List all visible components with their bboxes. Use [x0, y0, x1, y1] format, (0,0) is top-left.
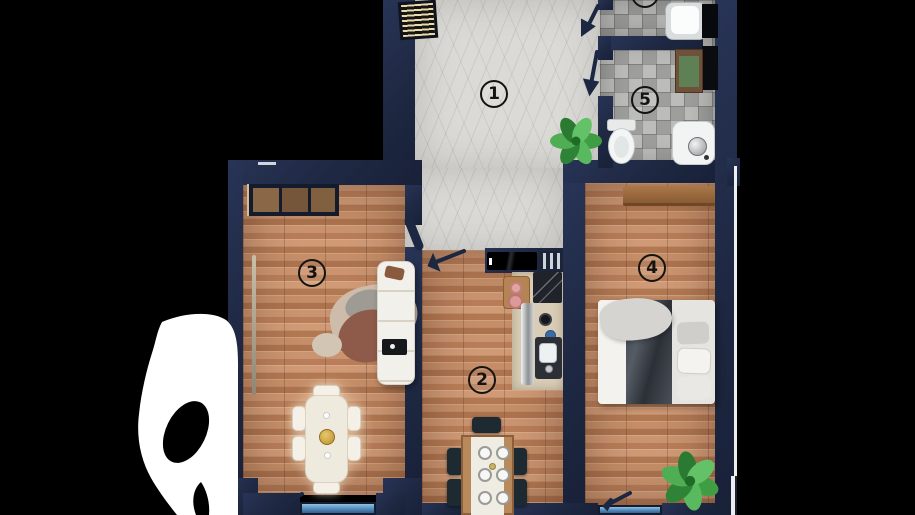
door-leaf [409, 221, 419, 246]
door-arrow-bedroom-balcony [605, 493, 630, 508]
potted-plant-bedroom [659, 450, 721, 512]
floor-plan: 1 2 3 4 5 [0, 0, 915, 515]
door-arrow-living-balcony [277, 494, 302, 509]
door-arrow-wc [583, 6, 598, 33]
white-mask-blob [138, 314, 238, 515]
door-arrow-bathroom [586, 52, 597, 92]
overlay [0, 0, 915, 515]
potted-plant-hallway [550, 114, 602, 167]
door-arrow-kitchen [430, 251, 464, 268]
